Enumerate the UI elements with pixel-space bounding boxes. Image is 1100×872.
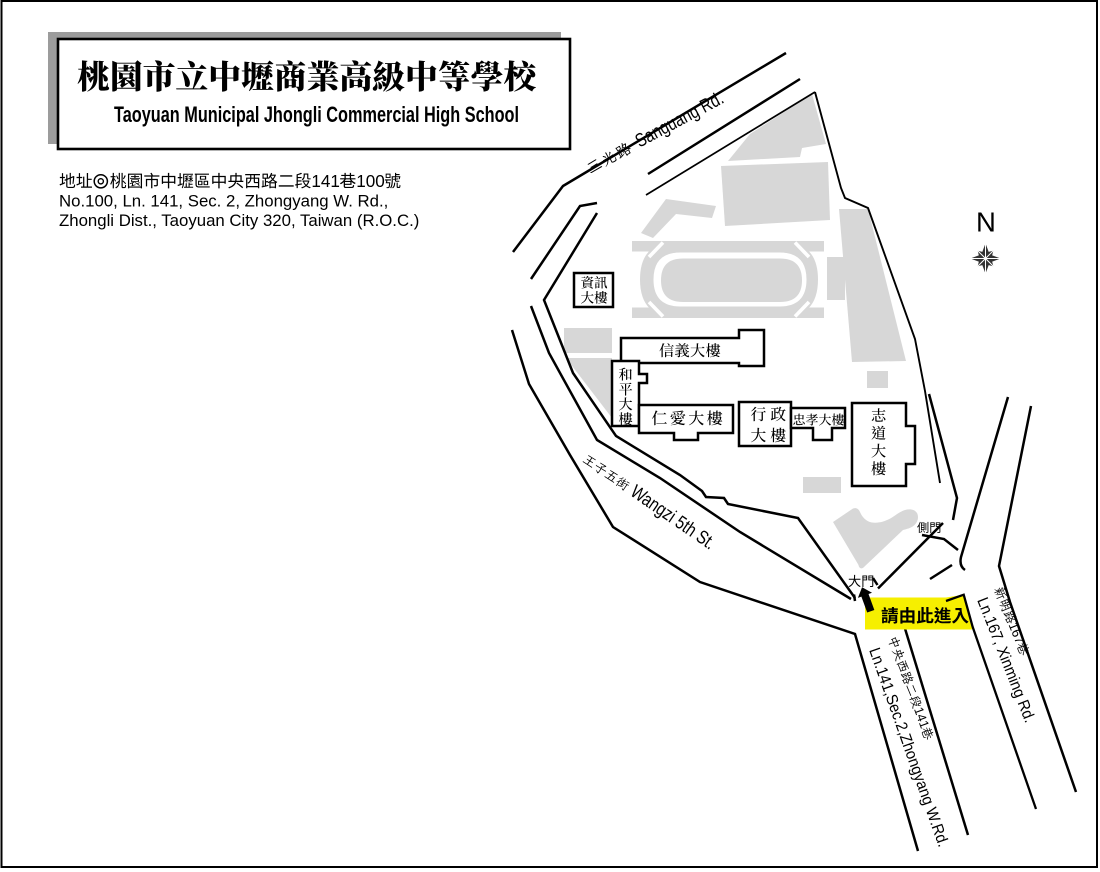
svg-text:Taoyuan Municipal Jhongli Comm: Taoyuan Municipal Jhongli Commercial Hig… [114,102,519,127]
svg-text:Zhongli Dist., Taoyuan City 32: Zhongli Dist., Taoyuan City 320, Taiwan … [59,211,419,230]
svg-text:N: N [976,207,996,238]
svg-text:141: 141 [311,172,340,191]
svg-text:100: 100 [356,172,385,191]
svg-text:No.100, Ln. 141, Sec. 2, Zhong: No.100, Ln. 141, Sec. 2, Zhongyang W. Rd… [59,192,388,211]
